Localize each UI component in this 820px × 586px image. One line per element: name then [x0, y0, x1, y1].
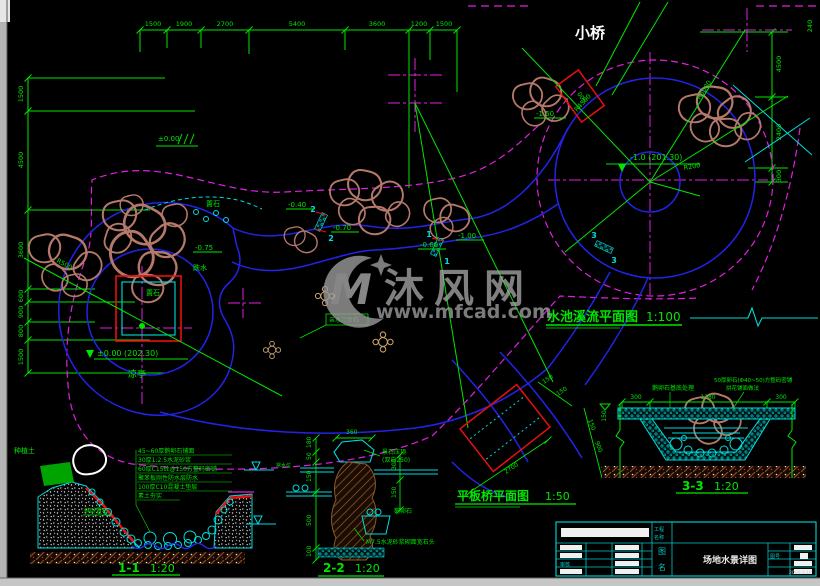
bridge-detail-plan: 2700 150 150 150 900 150 平板桥平面图 1:50	[455, 373, 610, 507]
rock-label-1: 置石	[146, 289, 160, 297]
section33-note-left: 鹅卵石基底处理	[652, 384, 694, 392]
stream-level-3: -0.60	[420, 241, 438, 249]
section33-dim-1: 300	[630, 394, 642, 401]
title-block: 工程 名称 图 名 审核 图号 场地水景详图 2006.1.10	[556, 522, 816, 576]
titleblock-header-2: 名称	[654, 534, 664, 541]
bridge-dim-w2: 900	[593, 440, 604, 453]
section11-rock	[73, 445, 106, 474]
section-2-2: 360 180 50 150 500 100 300 150 景石压顶	[286, 429, 438, 576]
dim-left-6: 800	[17, 325, 25, 337]
dim-left-3: 3600	[17, 242, 25, 259]
bridge-level-label: -1.50	[536, 110, 554, 118]
section33-note-r1: 50厚卵石(Φ40~50)方整码密铺	[714, 376, 793, 384]
section-1-1: 常水位 种植土 斜卧置石 45~60厚鹅卵石铺面 30厚1:2.5水泥砂浆 60…	[14, 445, 291, 575]
section22-scale: 1:20	[355, 562, 380, 575]
section22-dim-l4: 500	[306, 514, 313, 526]
titleblock-audit-label: 审核	[560, 561, 570, 568]
bridge-plan-scale: 1:50	[545, 490, 570, 503]
titleblock-header-1: 工程	[654, 526, 664, 533]
section22-dim-l5: 100	[306, 545, 313, 557]
dim-top-2: 1900	[176, 20, 193, 28]
radius-label-r5000: R5000	[695, 79, 713, 101]
pavilion-level-marker	[86, 350, 94, 358]
section33-pool-walls	[640, 419, 770, 460]
window-left-scroll-strip[interactable]	[0, 0, 10, 586]
dim-top-3: 2700	[217, 20, 234, 28]
section22-dim-l1: 180	[306, 436, 313, 448]
pavilion-level-label: ±0.00 (202.30)	[97, 349, 158, 358]
cut-mark-2b: 2	[328, 234, 334, 243]
dim-right-2: 4500	[775, 56, 783, 73]
cut-mark-3b: 3	[611, 256, 617, 265]
bridge-dim-a: 150	[541, 373, 555, 385]
section33-base	[602, 466, 806, 478]
dim-right-4: 300	[775, 170, 783, 182]
bridge-dim-b: 150	[555, 385, 569, 397]
cad-drawing: 1500 1900 2700 5400 3600 1200 1500 1500 …	[0, 0, 820, 586]
titleblock-date: 2006.1.10	[789, 570, 812, 576]
small-bridge-plan: 900	[556, 2, 668, 122]
stream-level-1: -0.40	[288, 201, 306, 209]
section33-dim-side: 150	[601, 410, 608, 422]
titleblock-name-label-2: 名	[658, 562, 666, 572]
cut-mark-3a: 3	[591, 231, 597, 240]
dim-top-1: 1500	[145, 20, 162, 28]
watermark-url: www.mfcad.com	[376, 301, 552, 323]
section22-dim-l2: 50	[306, 452, 313, 460]
break-line	[690, 308, 818, 326]
bridge-span-dim: 2700	[503, 461, 520, 475]
section22-top-dim: 360	[346, 429, 358, 436]
dim-top-5: 3600	[369, 20, 386, 28]
section11-cap-label: 斜卧置石	[84, 507, 108, 515]
dim-left-5: 900	[17, 306, 25, 318]
stream-level-4: -1.00	[458, 232, 476, 240]
datum-label: ±0.00	[158, 135, 179, 143]
plan-title-scale: 1:100	[646, 310, 681, 324]
watermark: M 沐风网 www.mfcad.com	[323, 254, 551, 328]
section11-soil-label: 种植土	[14, 446, 35, 455]
rock-clusters	[29, 72, 766, 449]
cut-mark-1a: 1	[426, 230, 432, 239]
pond-level-marker	[618, 164, 626, 172]
dim-chain-right: 4500 2400 300 240	[700, 20, 814, 186]
section33-title: 3-3	[682, 479, 704, 493]
section33-scale: 1:20	[714, 480, 739, 493]
dim-left-1: 1500	[17, 86, 25, 103]
note-line: 素土夯实	[138, 492, 162, 500]
small-bridge-label: 小桥	[575, 24, 606, 42]
section33-dim-2: 1180	[700, 394, 715, 401]
drop-level-label: -0.75	[195, 244, 213, 252]
plan-title: 水池溪流平面图	[547, 309, 638, 325]
note-line: 45~60厚鹅卵石铺面	[138, 447, 194, 455]
window-bottom-scroll-strip[interactable]	[0, 578, 820, 586]
dim-top-4: 5400	[289, 20, 306, 28]
section-3-3: 鹅卵石基底处理 50厚卵石(Φ40~50)方整码密铺 拼花铺面做法 300 11…	[600, 376, 806, 493]
dim-chain-top: 1500 1900 2700 5400 3600 1200 1500	[137, 20, 461, 188]
section11-grass	[40, 462, 74, 486]
plan-annotations: 小桥 -1.50 ±0.00 置石 置石 跌水 -0.75 -0.40 -0.7…	[86, 24, 700, 380]
note-line: 聚苯板刚性防水层防水	[138, 474, 198, 482]
titleblock-drawing-name: 场地水景详图	[703, 554, 757, 566]
section22-title: 2-2	[323, 561, 345, 575]
stream-level-2: -0.70	[333, 224, 351, 232]
section33-note-r2: 拼花铺面做法	[726, 384, 760, 392]
note-line: 60厚C15砼@150方整码密铺	[138, 465, 217, 473]
pond-level-label: -1.0 (201.30)	[630, 153, 682, 162]
titleblock-name-label-1: 图	[658, 547, 666, 556]
note-line: 100厚C10混凝土垫层	[138, 483, 197, 491]
dim-left-7: 1500	[17, 349, 25, 366]
watermark-logo: M	[330, 265, 372, 314]
section33-dim-3: 300	[775, 394, 787, 401]
radius-label-r200: R200	[683, 161, 701, 172]
dim-right-1: 240	[806, 20, 814, 32]
rock-label-2: 置石	[206, 200, 220, 208]
dim-top-7: 1500	[436, 20, 453, 28]
pavilion-label: 凉亭	[128, 368, 146, 380]
bridge-dim-w1: 150	[586, 418, 597, 431]
section22-cap-label-2: (双向250)	[382, 456, 410, 464]
cad-viewport[interactable]: 1500 1900 2700 5400 3600 1200 1500 1500 …	[0, 0, 820, 586]
section22-cap-label-1: 景石压顶	[382, 449, 406, 456]
section11-water-label: 常水位	[276, 462, 291, 469]
cut-mark-1b: 1	[444, 257, 450, 266]
section11-scale: 1:20	[150, 562, 175, 575]
note-line: 30厚1:2.5水泥砂浆	[138, 456, 191, 464]
section22-mortar-label: M7.5水泥砂浆砌面宽石头	[366, 538, 435, 546]
small-rock-circles	[194, 210, 229, 223]
section22-dim-r2: 150	[391, 486, 398, 498]
dim-left-4: 600	[17, 290, 25, 302]
titleblock-no-label: 图号	[770, 554, 780, 560]
section22-dim-l3: 150	[306, 470, 313, 482]
section22-pebble-label: 鹅卵石	[394, 507, 412, 515]
bridge-plan-title: 平板桥平面图	[457, 488, 529, 503]
plan-title-group: 水池溪流平面图 1:100	[546, 308, 818, 328]
dim-left-2: 4500	[17, 152, 25, 169]
dim-top-6: 1200	[411, 20, 428, 28]
section11-title: 1-1	[118, 561, 140, 575]
waterfall-label: 跌水	[193, 263, 207, 272]
